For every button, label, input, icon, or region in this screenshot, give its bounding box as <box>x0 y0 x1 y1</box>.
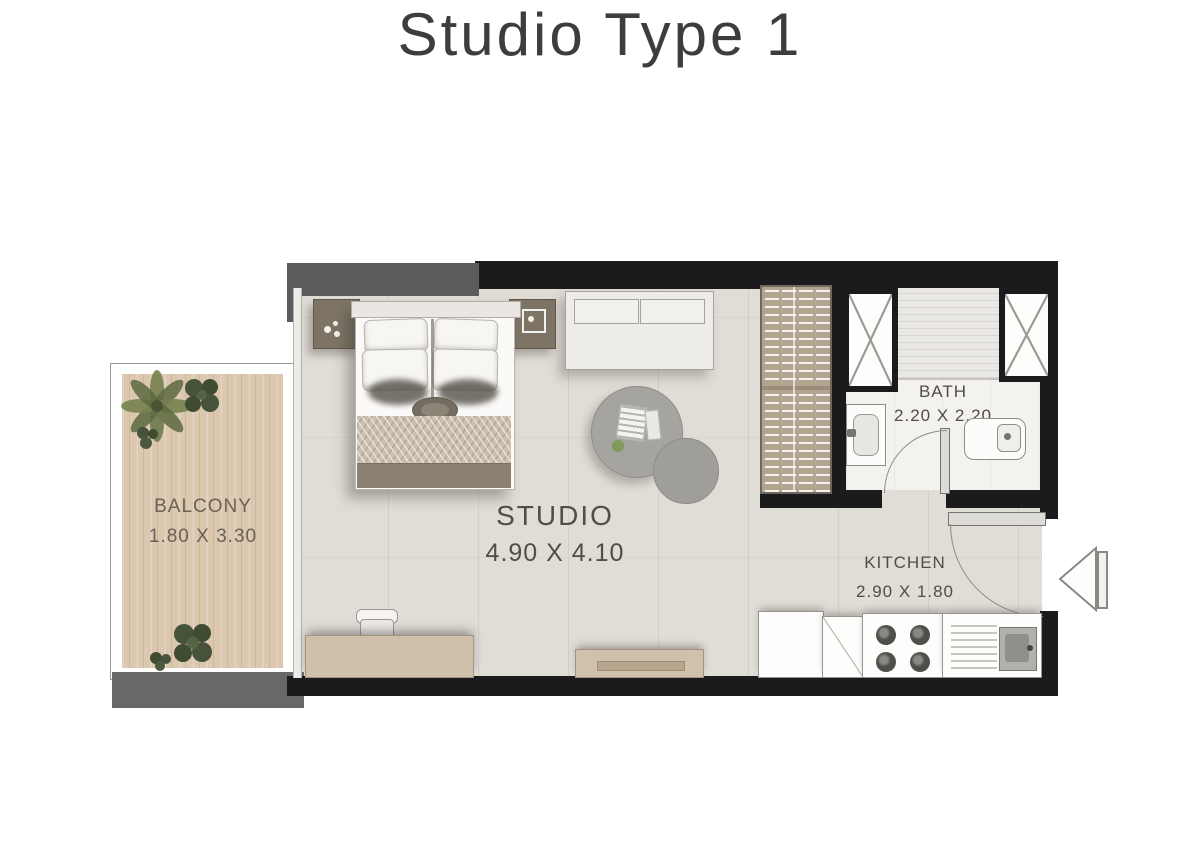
balcony-label: BALCONY 1.80 X 3.30 <box>122 492 284 552</box>
tv-console-drawer <box>597 661 685 671</box>
wardrobe-divider <box>793 287 795 492</box>
balcony-name: BALCONY <box>154 496 252 517</box>
studio-name: STUDIO <box>496 500 614 531</box>
floor-plan-page: Studio Type 1 BALCONY 1.80 X 3.30 <box>0 0 1200 846</box>
studio-label: STUDIO 4.90 X 4.10 <box>445 498 665 571</box>
lamp-dot-icon <box>528 316 534 322</box>
candle-icon <box>333 321 338 326</box>
flower-cluster-icon <box>136 426 160 450</box>
sink-basin <box>853 414 879 456</box>
balcony-sliding-door <box>293 288 302 678</box>
faucet-icon <box>1027 645 1033 651</box>
stove-burner <box>910 652 930 672</box>
shaft-x-icon <box>1005 294 1048 376</box>
candle-icon <box>324 326 331 333</box>
page-title: Studio Type 1 <box>0 0 1200 69</box>
wardrobe <box>760 285 832 494</box>
bathroom-sink <box>846 404 886 466</box>
blanket <box>357 416 511 463</box>
sofa-cushion <box>640 299 705 324</box>
book-icon <box>616 404 648 442</box>
sofa <box>565 291 714 370</box>
shaft-x-icon <box>849 294 892 386</box>
tv-console <box>575 649 704 678</box>
candle-icon <box>334 331 340 337</box>
kitchen-dims: 2.90 X 1.80 <box>856 582 954 601</box>
flower-cluster-icon <box>170 622 216 666</box>
kitchen-label: KITCHEN 2.90 X 1.80 <box>818 548 992 606</box>
ottoman <box>653 438 719 504</box>
toilet <box>964 418 1026 460</box>
plant-pot-icon <box>612 440 624 452</box>
entrance-arrow-icon <box>1058 542 1110 616</box>
kitchen-sink <box>999 627 1037 671</box>
fridge-cabinet <box>758 611 824 678</box>
kitchen-name: KITCHEN <box>864 553 946 572</box>
faucet-icon <box>847 429 856 437</box>
bath-name: BATH <box>919 382 967 401</box>
toilet-flush-icon <box>1004 433 1011 440</box>
desk <box>305 635 474 678</box>
wardrobe-shelf <box>762 386 830 390</box>
wall-bottom <box>287 676 1058 696</box>
balcony-dims: 1.80 X 3.30 <box>149 526 257 547</box>
stove-burner <box>910 625 930 645</box>
lamp-icon <box>522 309 546 333</box>
bed-tray-inner <box>421 403 449 417</box>
flower-cluster-icon <box>182 378 222 414</box>
sink-basin <box>1005 634 1029 662</box>
wall-bath-bottom-right <box>946 490 1040 508</box>
magazine-icon <box>644 409 661 440</box>
balcony-railing <box>112 672 304 708</box>
kitchen-sink-unit <box>942 613 1042 678</box>
shaft-right <box>999 288 1054 382</box>
headboard <box>351 301 521 318</box>
bed-foot-band <box>357 463 511 488</box>
bed-runner <box>431 319 434 403</box>
stove-burner <box>876 652 896 672</box>
flower-cluster-icon <box>148 650 174 672</box>
shaft-left <box>843 288 898 392</box>
bed <box>355 302 515 490</box>
sofa-cushion <box>574 299 639 324</box>
drainboard <box>951 625 997 669</box>
wall-top-window <box>287 263 479 296</box>
kitchen-cabinet <box>822 616 864 678</box>
studio-dims: 4.90 X 4.10 <box>486 539 625 567</box>
stove <box>862 613 944 678</box>
shower-area <box>886 288 999 380</box>
stove-burner <box>876 625 896 645</box>
